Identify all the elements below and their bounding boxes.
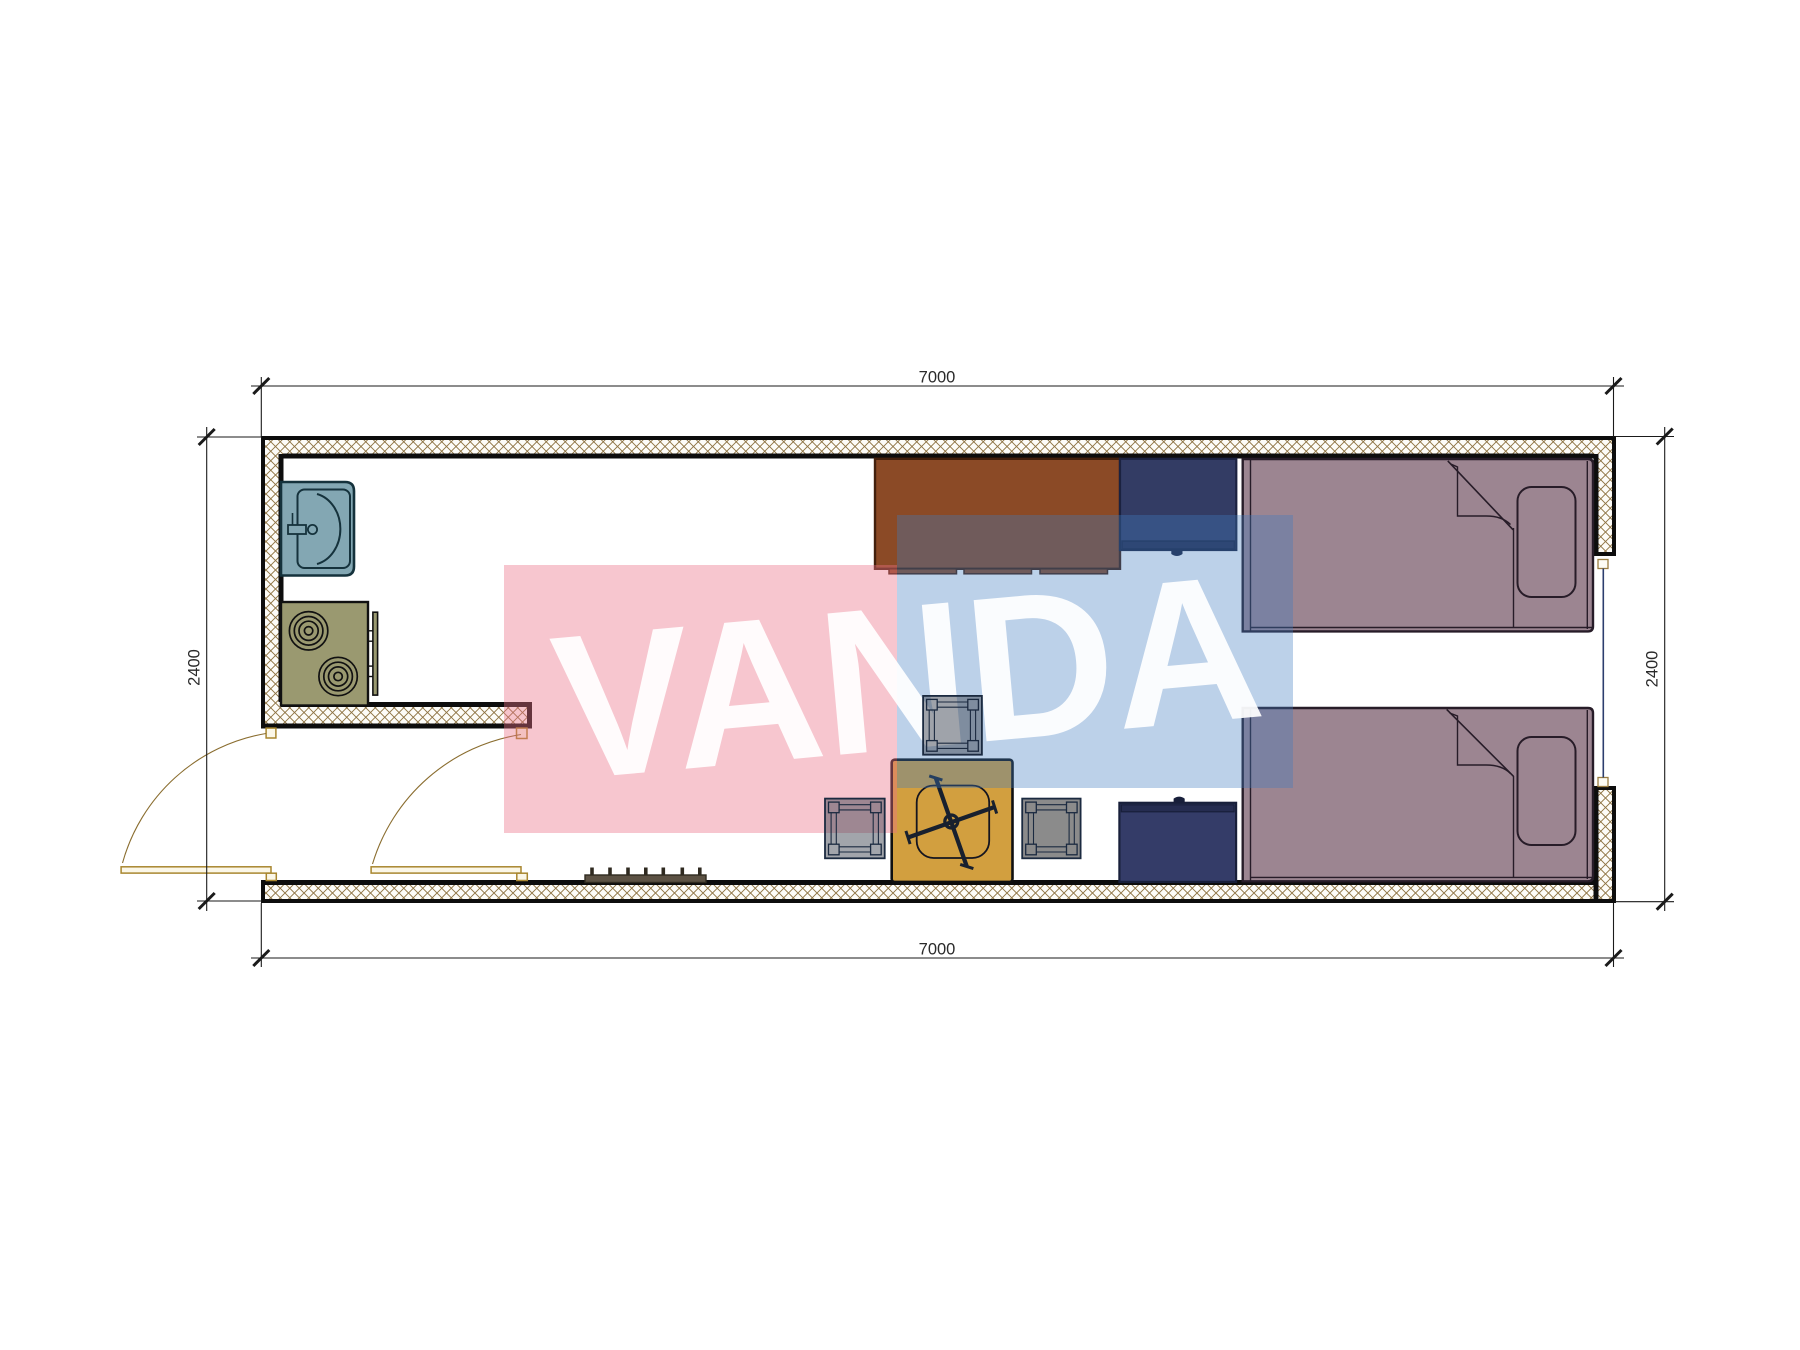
svg-text:2400: 2400 [1644,651,1662,688]
svg-text:2400: 2400 [186,649,204,686]
svg-text:7000: 7000 [919,941,956,959]
svg-text:7000: 7000 [919,369,956,387]
